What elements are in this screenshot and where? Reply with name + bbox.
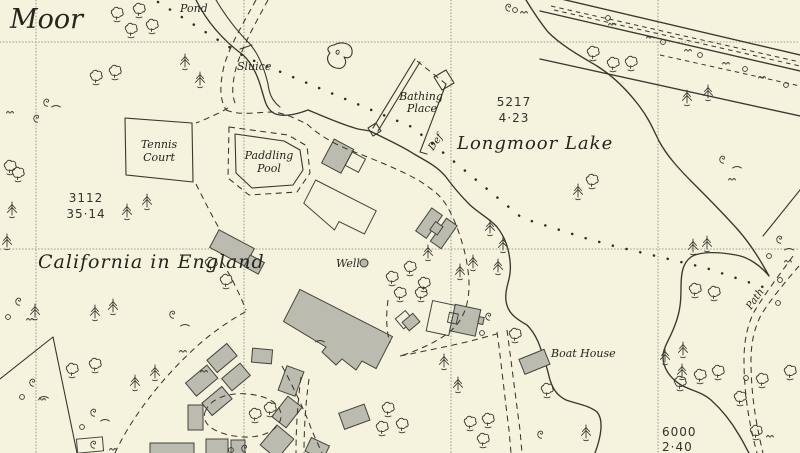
boat-house-label: Boat House: [550, 347, 616, 360]
tennis-court-label-line2: Court: [143, 151, 175, 164]
lake-parcel-area: 4·23: [499, 111, 530, 125]
tennis-court-label-line1: Tennis: [141, 138, 178, 151]
longmoor-lake-label: Longmoor Lake: [456, 133, 613, 154]
bathing-place-label-line2: Place: [406, 102, 438, 115]
well-marker: [360, 259, 368, 267]
lake-parcel-number: 5217: [497, 95, 532, 109]
pond-label: Pond: [179, 2, 208, 15]
moor-parcel-area: 35·14: [66, 207, 105, 221]
well-label: Well: [336, 257, 360, 270]
sluice-label: Sluice: [237, 60, 272, 73]
california-in-england-label: California in England: [38, 251, 265, 273]
moor-parcel-number: 3112: [69, 191, 104, 205]
os-map-canvas: Moor Pond Sluice Bathing Place 5217 4·23…: [0, 0, 800, 453]
map-svg: Moor Pond Sluice Bathing Place 5217 4·23…: [0, 0, 800, 453]
se-parcel-area: 2·40: [662, 440, 693, 453]
paddling-pool-label-line1: Paddling: [244, 149, 294, 162]
moor-label: Moor: [9, 4, 85, 35]
paddling-pool-label-line2: Pool: [256, 162, 281, 175]
se-parcel-number: 6000: [662, 425, 697, 439]
